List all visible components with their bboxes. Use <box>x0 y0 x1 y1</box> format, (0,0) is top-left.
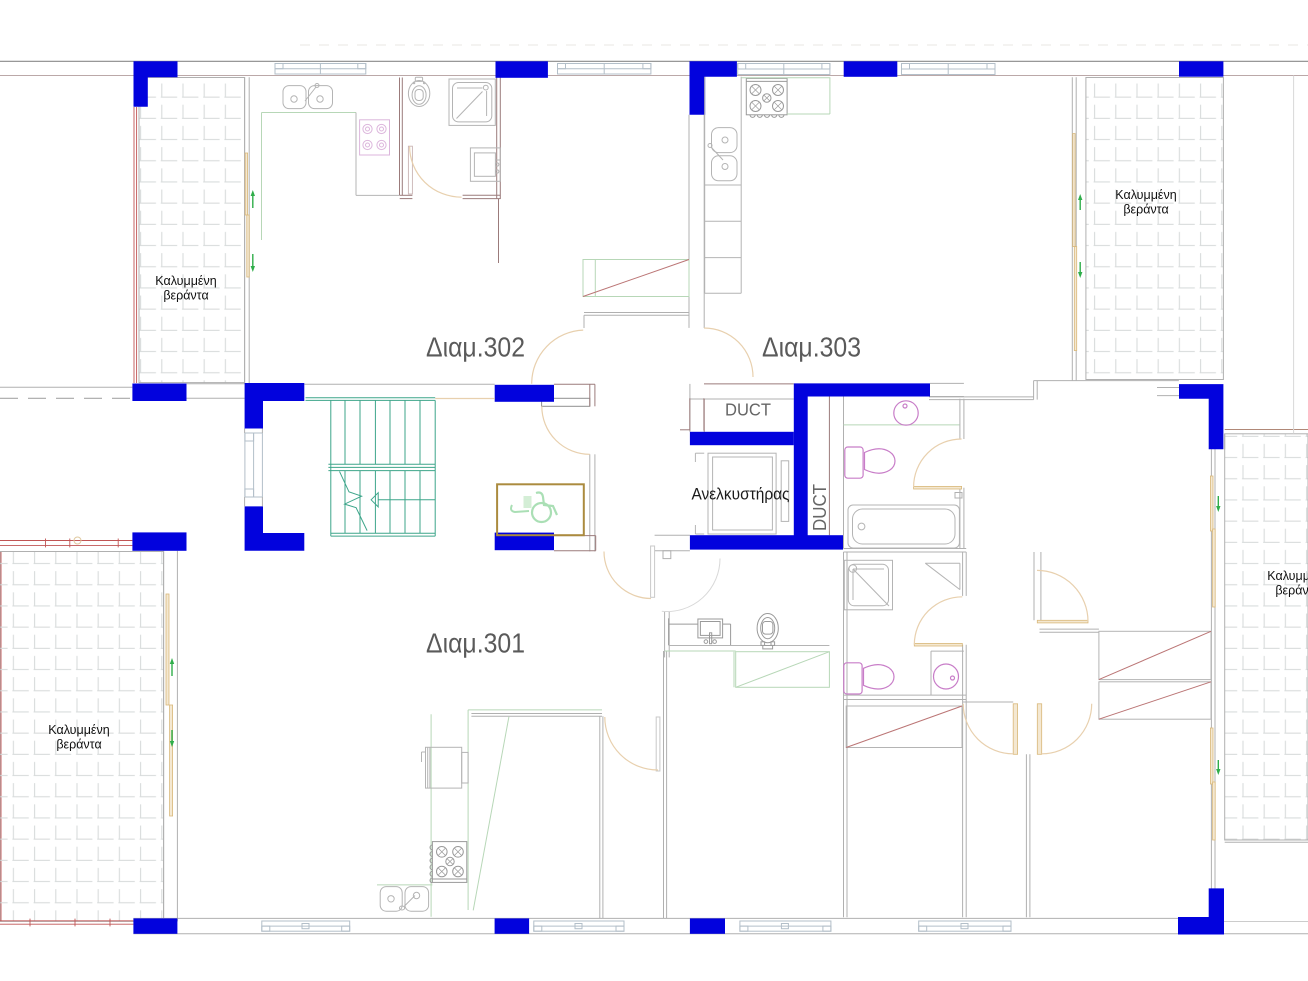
svg-text:DUCT: DUCT <box>725 400 771 420</box>
svg-text:Καλυμμένη: Καλυμμένη <box>155 274 216 288</box>
svg-text:Διαμ.301: Διαμ.301 <box>426 628 525 659</box>
svg-text:Καλυμμένη: Καλυμμένη <box>1267 569 1308 583</box>
svg-text:βεράντα: βεράντα <box>1275 584 1308 598</box>
svg-text:Καλυμμένη: Καλυμμένη <box>48 723 109 737</box>
svg-text:Καλυμμένη: Καλυμμένη <box>1115 188 1176 202</box>
svg-text:βεράντα: βεράντα <box>1123 203 1168 217</box>
svg-text:DUCT: DUCT <box>810 484 830 531</box>
svg-text:βεράντα: βεράντα <box>56 738 101 752</box>
svg-text:βεράντα: βεράντα <box>163 289 208 303</box>
svg-text:Διαμ.303: Διαμ.303 <box>762 332 861 363</box>
svg-text:Διαμ.302: Διαμ.302 <box>426 332 525 363</box>
svg-text:Ανελκυστήρας: Ανελκυστήρας <box>692 485 790 504</box>
